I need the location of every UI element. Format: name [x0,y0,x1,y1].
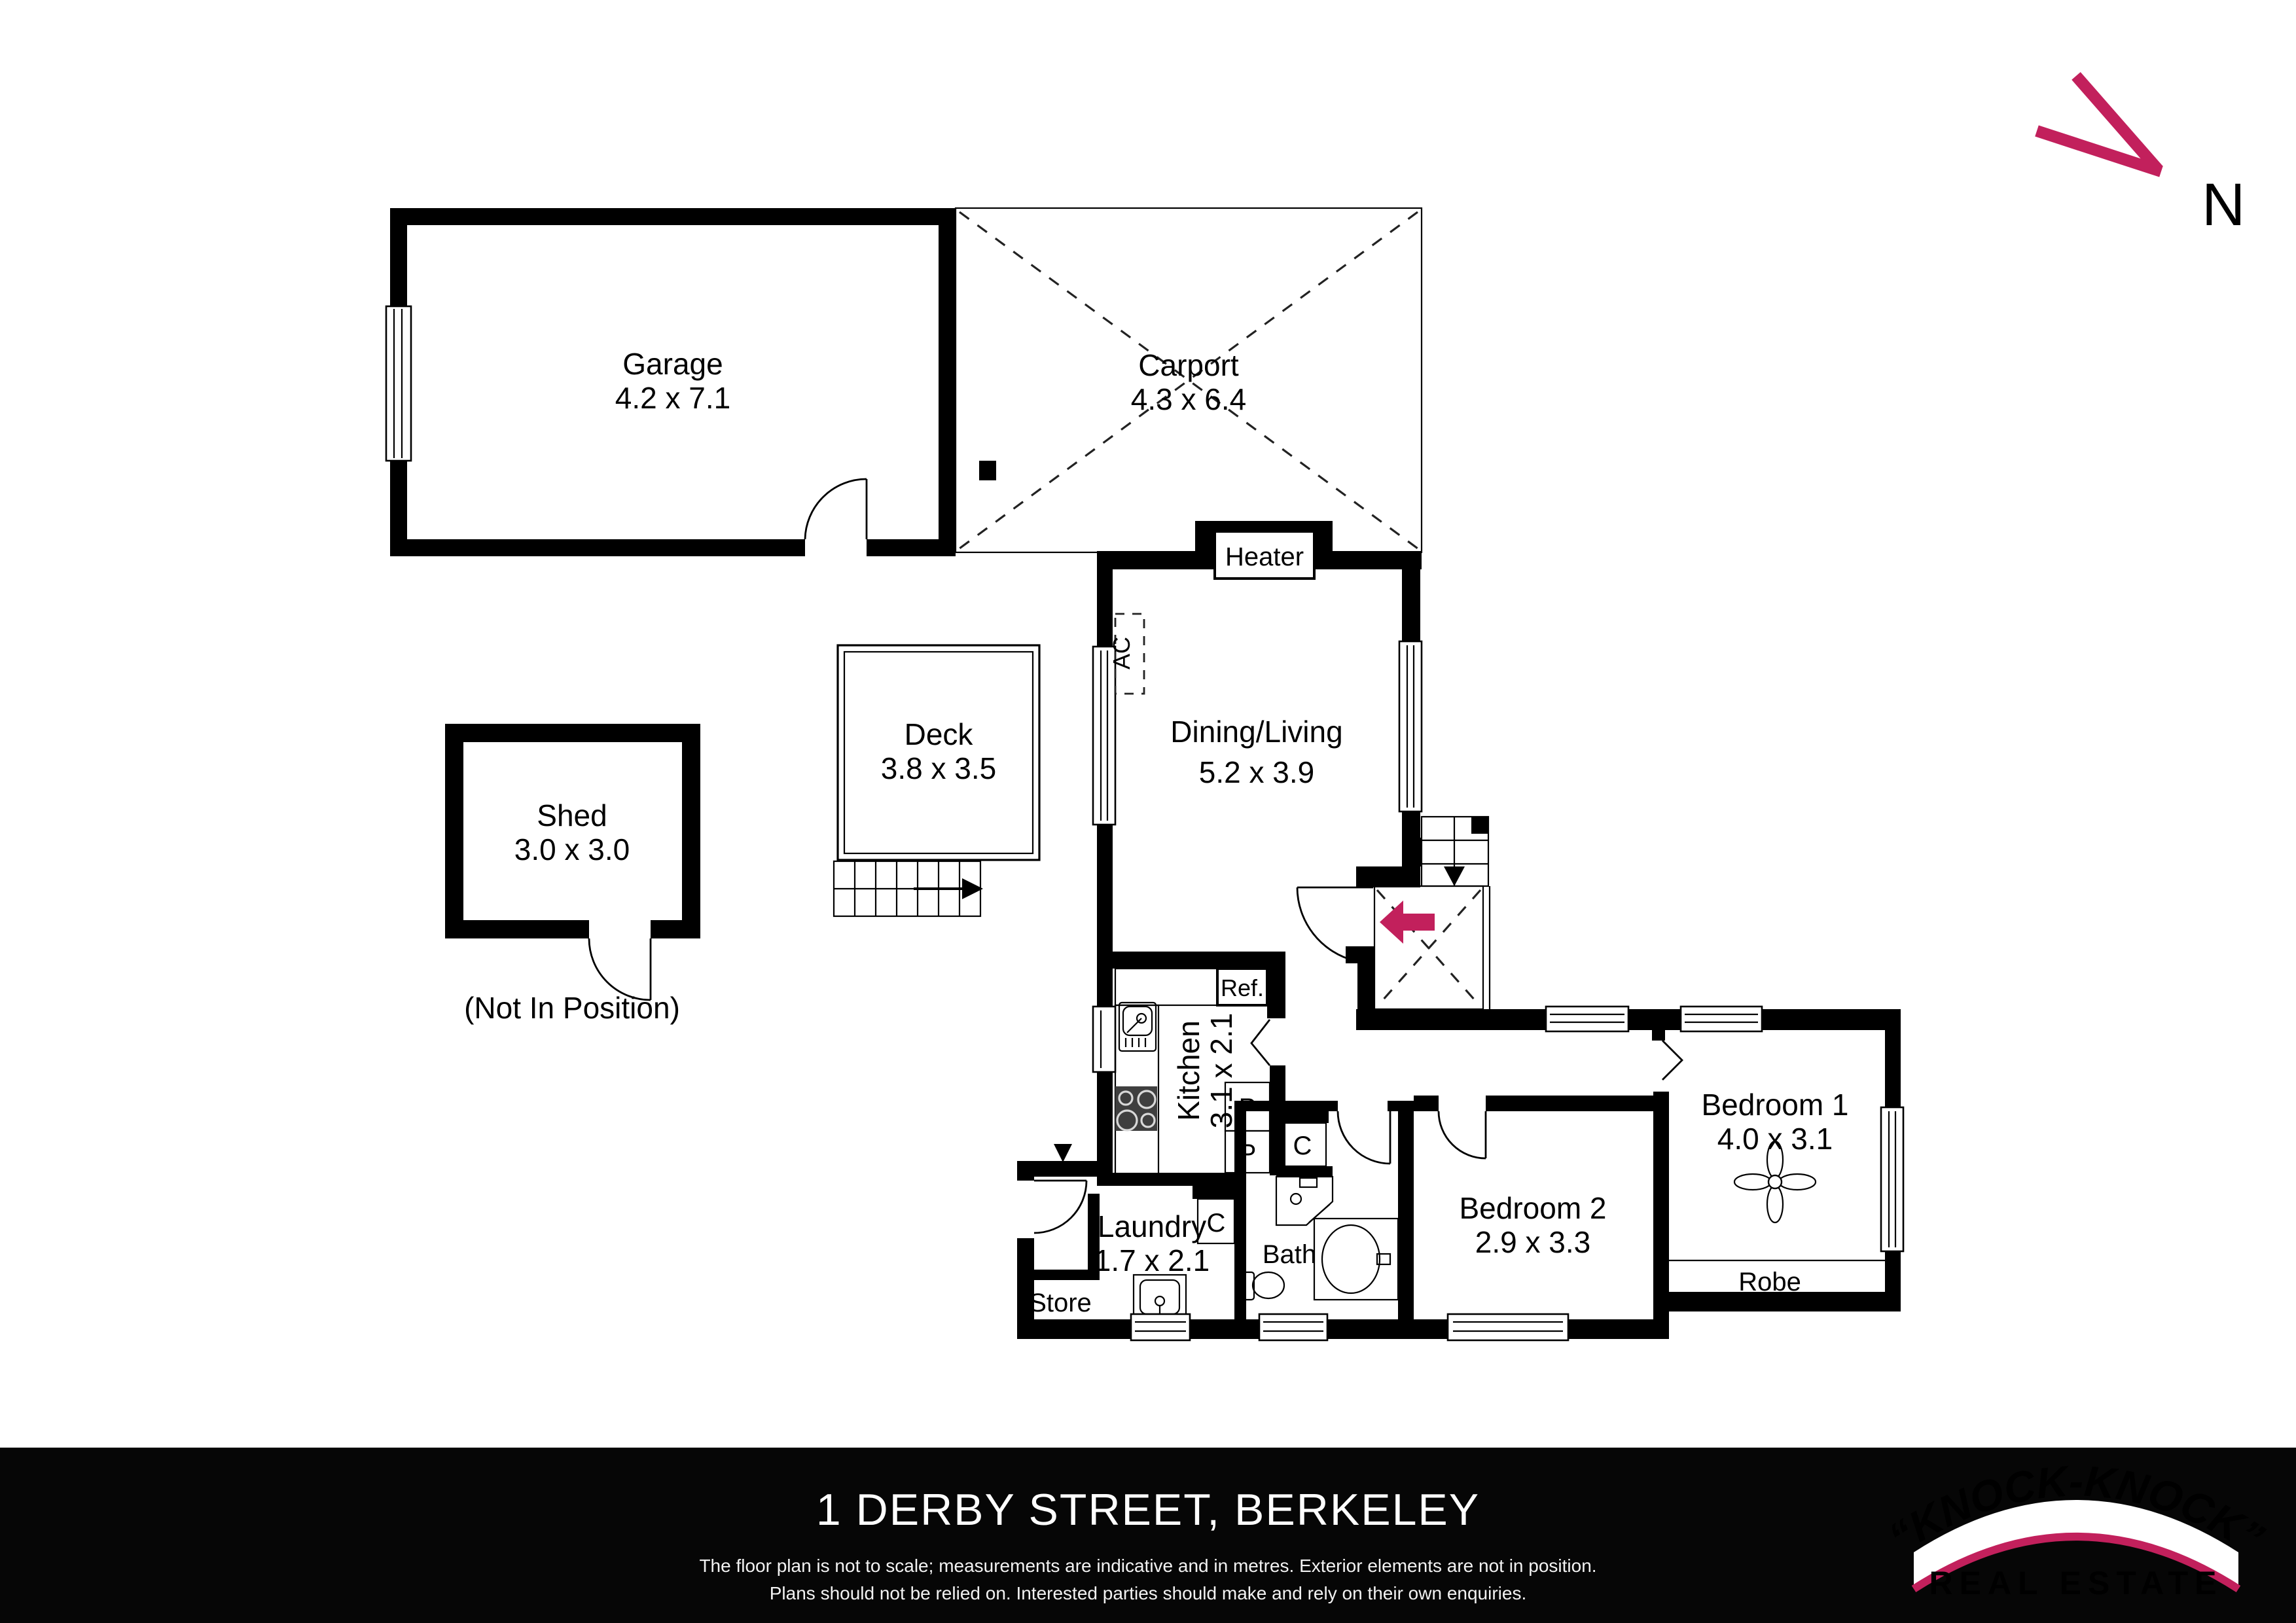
room-kitchen: Ref. P P Kit [1093,952,1285,1183]
toilet [1241,1272,1284,1300]
carport-post [979,461,996,480]
stair-down-arrow-icon [1444,866,1465,886]
wall-segment [390,539,805,556]
wall-segment [1113,952,1270,969]
wall-segment [1653,1092,1669,1319]
tub-drain [1155,1296,1164,1306]
room-name: Bedroom 1 [1701,1088,1848,1122]
window [1131,1314,1190,1340]
cupboard-label: C [1207,1209,1226,1238]
window [1399,641,1422,811]
north-indicator: N [2037,76,2245,238]
floor-plan: N Garage 4.2 x 7.1 Carport 4.3 x 6.4 She [0,0,2296,1623]
room-laundry: C Store Laundry 1.7 x 2.1 [1017,1144,1246,1339]
room-dims: 3.8 x 3.5 [881,751,996,785]
room-dims: 3.0 x 3.0 [514,832,630,866]
room-name: Shed [537,798,607,832]
window [1546,1007,1628,1031]
room-carport: Carport 4.3 x 6.4 [956,208,1422,552]
sink-faucet-arm [1127,1018,1141,1033]
wall-segment [1486,1096,1653,1111]
wall-segment [445,920,589,938]
wall-segment [1267,952,1285,1018]
address-title: 1 DERBY STREET, BERKELEY [816,1485,1480,1535]
bathtub [1314,1219,1398,1300]
fridge-label: Ref. [1221,974,1264,1001]
wall-segment [1402,569,1420,641]
window [1448,1314,1568,1340]
fan-blade [1767,1186,1783,1222]
logo-tagline: REAL ESTATE [1929,1565,2223,1601]
wall-segment [682,724,700,938]
fan-hub [1768,1175,1782,1188]
room-dims: 4.3 x 6.4 [1131,382,1246,416]
bathtub-outline [1314,1219,1398,1300]
deck-stairs [834,861,983,916]
basin-tap [1300,1178,1317,1187]
stair-post [1471,817,1488,834]
wall-segment [1356,1009,1546,1030]
door-swing [1338,1111,1390,1164]
wall-segment [1276,1111,1329,1123]
cupboard-label: C [1293,1132,1312,1160]
disclaimer-line: The floor plan is not to scale; measurem… [699,1556,1596,1576]
wall-segment [1388,1101,1398,1111]
room-name: Bedroom 2 [1459,1191,1606,1225]
kitchen-door-ajar [1251,1020,1270,1065]
window [386,306,411,461]
wall-segment [1568,1319,1669,1339]
disclaimer-line: Plans should not be relied on. Intereste… [770,1583,1526,1603]
bench-counter [1115,969,1217,1005]
wall-segment [390,208,407,306]
toilet-bowl [1253,1272,1284,1298]
room-dims: 3.1 x 2.1 [1204,1013,1238,1128]
wall-segment [651,920,700,938]
door-swing [1439,1111,1486,1158]
room-dining-living: Heater AC Dining/Living 5.2 x 3.9 [1093,521,1422,1007]
room-bedroom1: Robe Bedroom 1 4.0 x 3.1 [1653,1009,1903,1311]
wall-segment [1017,1161,1034,1181]
wall-segment [1097,1173,1246,1186]
room-bedroom2: Bedroom 2 2.9 x 3.3 [1398,1092,1669,1319]
entry-arrow-shaft [1403,914,1435,931]
wall-segment [1398,1101,1414,1319]
wall-segment [1346,946,1374,963]
room-name: Deck [905,717,974,751]
bedroom-wing-north-wall [1546,1007,1901,1080]
wall-segment [1762,1009,1901,1030]
room-dims: 5.2 x 3.9 [1199,755,1314,789]
room-dims: 2.9 x 3.3 [1475,1225,1590,1259]
laundry-tub [1134,1275,1186,1319]
footer: 1 DERBY STREET, BERKELEY The floor plan … [0,1448,2296,1623]
wall-segment [1034,1270,1088,1280]
door-swing [1034,1181,1086,1233]
room-deck: Deck 3.8 x 3.5 [834,645,1039,916]
room-name: Bath [1263,1240,1316,1269]
room-dims: 4.0 x 3.1 [1717,1122,1833,1156]
window [1881,1107,1903,1251]
window [1093,647,1115,825]
wall-segment [939,208,956,556]
south-wall [1017,1314,1669,1340]
window [1681,1007,1762,1031]
north-label: N [2202,171,2245,238]
window [1259,1314,1327,1340]
wall-segment [1885,1009,1901,1107]
wall-segment [390,208,956,225]
stove [1115,1086,1157,1131]
room-name: Carport [1138,348,1239,382]
room-dims: 4.2 x 7.1 [615,381,730,415]
basin-edge [1309,1204,1330,1222]
heater-label: Heater [1225,543,1304,571]
wall-segment [1097,825,1113,1007]
room-note: (Not In Position) [464,991,680,1025]
entry-path-arrow-icon [1054,1144,1072,1162]
room-shed: Shed 3.0 x 3.0 (Not In Position) [445,724,700,1025]
ac-label: AC [1108,637,1135,669]
wall-segment [1414,1096,1439,1111]
room-name: Laundry [1098,1209,1206,1243]
entry-arrow-head [1380,901,1403,944]
wall-segment [1190,1319,1259,1339]
wall-segment [1276,1166,1333,1177]
basin-drain [1291,1194,1301,1204]
bedroom1-door-ajar [1662,1041,1682,1080]
wall-segment [1097,551,1113,647]
kitchen-sink [1119,1003,1156,1051]
wall-segment [1017,1319,1131,1339]
door-swing [805,479,867,539]
room-name: Dining/Living [1170,715,1342,749]
wall-segment [1357,963,1374,1010]
room-dims: 1.7 x 2.1 [1094,1243,1210,1277]
room-name: Kitchen [1172,1020,1206,1120]
room-name: Store [1029,1289,1092,1317]
robe-label: Robe [1738,1268,1801,1296]
fan-blade [1779,1174,1816,1190]
wall-segment [445,724,463,938]
entry [1346,817,1546,1030]
wall-segment [1628,1009,1681,1030]
entry-arrow-icon [1380,901,1435,944]
fan-blade [1734,1174,1771,1190]
bathtub-basin [1322,1225,1380,1293]
wall-segment [445,724,700,742]
room-name: Garage [622,347,723,381]
wall-segment [1356,866,1420,887]
wall-segment [1234,1101,1338,1111]
window [1093,1007,1115,1072]
stair-post [1406,838,1422,866]
wall-segment [1097,1072,1113,1183]
room-bath: C Bath [1234,1101,1398,1319]
wall-segment [1327,1319,1448,1339]
room-garage: Garage 4.2 x 7.1 [386,208,956,556]
wall-segment [1652,1030,1665,1041]
